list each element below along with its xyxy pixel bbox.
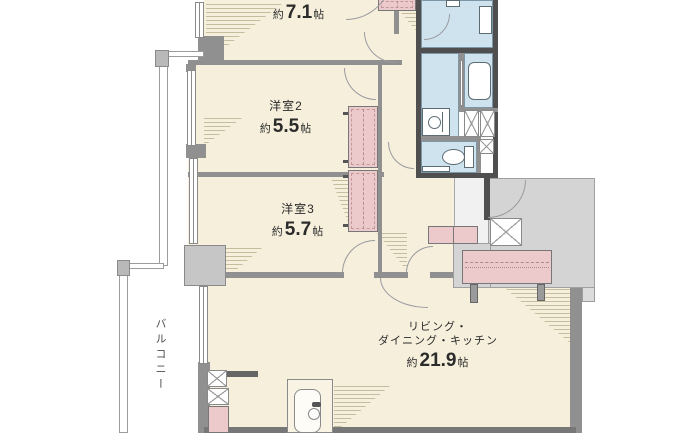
ldk-right-wall	[570, 284, 582, 433]
wall	[416, 0, 421, 178]
bedroom3-name: 洋室3	[246, 202, 350, 218]
window	[199, 286, 208, 364]
bench-leg	[537, 284, 545, 301]
refrigerator-space	[208, 406, 229, 433]
wall	[188, 60, 402, 65]
vanity-sink	[422, 108, 450, 136]
bathroom-door	[460, 60, 463, 106]
bottom-wall	[204, 427, 576, 433]
balcony-divider	[117, 260, 130, 276]
bedroom2-label: 洋室2 約5.5帖	[236, 99, 336, 139]
wall	[394, 8, 399, 34]
pillar	[184, 245, 226, 286]
balcony-label: バルコニー	[152, 318, 168, 408]
bedroom1-label: 洋室1 約7.1帖	[244, 0, 354, 25]
meter-box	[490, 218, 522, 246]
washing-machine	[479, 6, 492, 34]
bedroom2-name: 洋室2	[236, 99, 336, 115]
storage-closet	[464, 110, 479, 137]
bedroom2-closet	[348, 106, 378, 168]
floorplan: 洋室1 約7.1帖 洋室2 約5.5帖 洋室3 約5.7帖 リビング・ ダイニン…	[0, 0, 700, 433]
storage-closet	[479, 139, 494, 154]
ldk-name-line1: リビング・	[368, 320, 508, 334]
wall	[416, 173, 498, 178]
storage-bench	[462, 250, 552, 284]
balcony-railing	[119, 262, 128, 433]
window	[187, 70, 196, 146]
closet-handle	[343, 112, 348, 115]
wall	[421, 48, 493, 53]
laundry-fixture	[446, 0, 460, 7]
window	[189, 158, 198, 244]
toilet-bowl	[442, 149, 465, 165]
kitchen-shelf	[227, 371, 258, 377]
balcony-railing	[159, 64, 168, 266]
balcony-divider	[155, 50, 169, 67]
wall	[186, 144, 206, 158]
wall	[378, 63, 382, 275]
bedroom3-closet	[348, 170, 378, 232]
closet-handle	[343, 175, 348, 178]
bedroom1-closet	[378, 0, 416, 11]
bathtub	[468, 62, 491, 100]
toilet-counter	[422, 166, 450, 172]
shoe-cabinet	[428, 226, 478, 244]
kitchen-storage	[207, 370, 227, 387]
ldk-name-line2: ダイニング・キッチン	[368, 334, 508, 348]
storage-closet	[480, 110, 495, 137]
ldk-label: リビング・ ダイニング・キッチン 約21.9帖	[368, 320, 508, 373]
bedroom3-label: 洋室3 約5.7帖	[246, 202, 350, 242]
closet-handle	[343, 160, 348, 163]
kitchen-counter	[287, 379, 333, 433]
bench-leg	[470, 284, 478, 303]
kitchen-faucet	[312, 402, 321, 407]
window	[195, 2, 204, 38]
toilet-tank	[464, 146, 474, 168]
kitchen-storage	[207, 388, 229, 405]
